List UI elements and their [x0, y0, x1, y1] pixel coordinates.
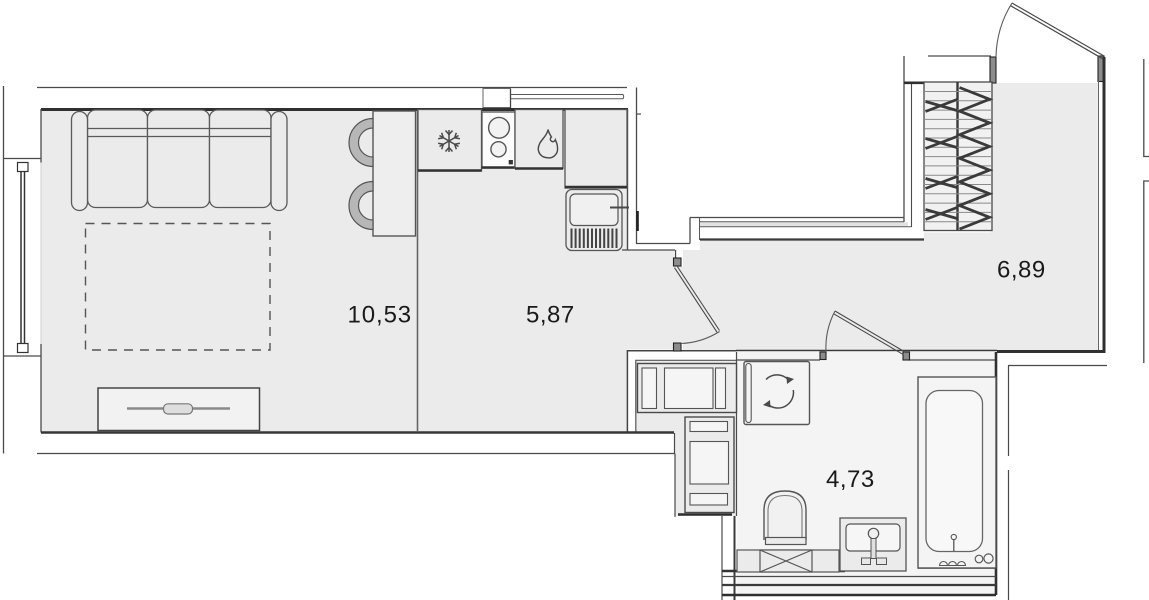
- svg-text:10,53: 10,53: [348, 302, 413, 329]
- svg-text:4,73: 4,73: [826, 466, 875, 493]
- svg-text:6,89: 6,89: [997, 257, 1046, 284]
- svg-text:5,87: 5,87: [526, 302, 575, 329]
